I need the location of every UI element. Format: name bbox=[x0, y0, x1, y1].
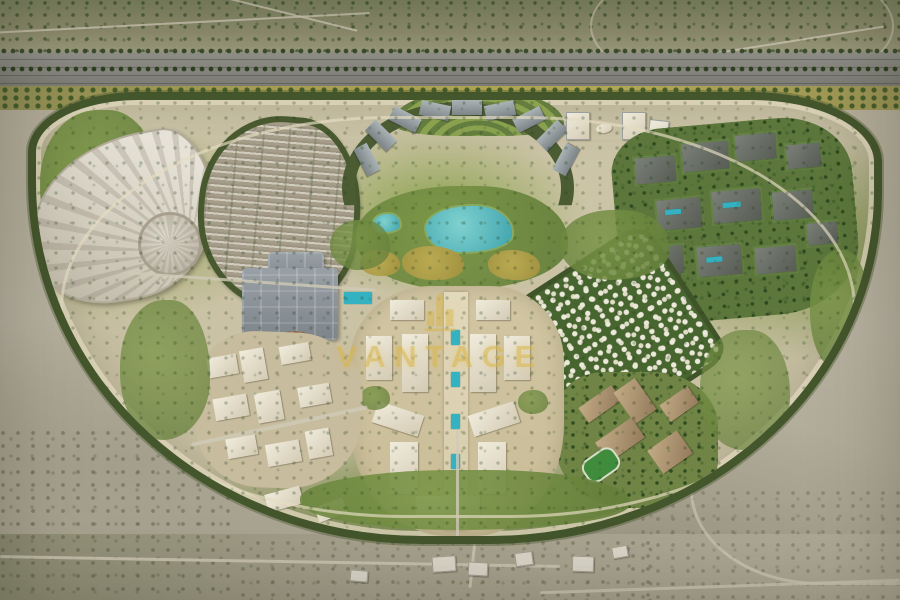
desert-building bbox=[431, 555, 456, 573]
perimeter-highway bbox=[0, 52, 900, 86]
desert-building bbox=[572, 556, 595, 573]
highway-median-trees bbox=[0, 66, 900, 72]
building-block bbox=[735, 132, 777, 161]
watermark: VANTAGE bbox=[338, 280, 542, 384]
desert-building bbox=[350, 569, 369, 583]
building-block bbox=[452, 100, 482, 115]
desert-building bbox=[514, 551, 534, 567]
tower-emblem-icon bbox=[417, 292, 463, 340]
aerial-masterplan-render: VANTAGE bbox=[0, 0, 900, 600]
highway-tree-row-north bbox=[0, 48, 900, 54]
south-axis-road bbox=[456, 430, 459, 540]
desert-building bbox=[468, 561, 489, 576]
building-block bbox=[786, 142, 822, 169]
watermark-text: VANTAGE bbox=[336, 341, 544, 372]
